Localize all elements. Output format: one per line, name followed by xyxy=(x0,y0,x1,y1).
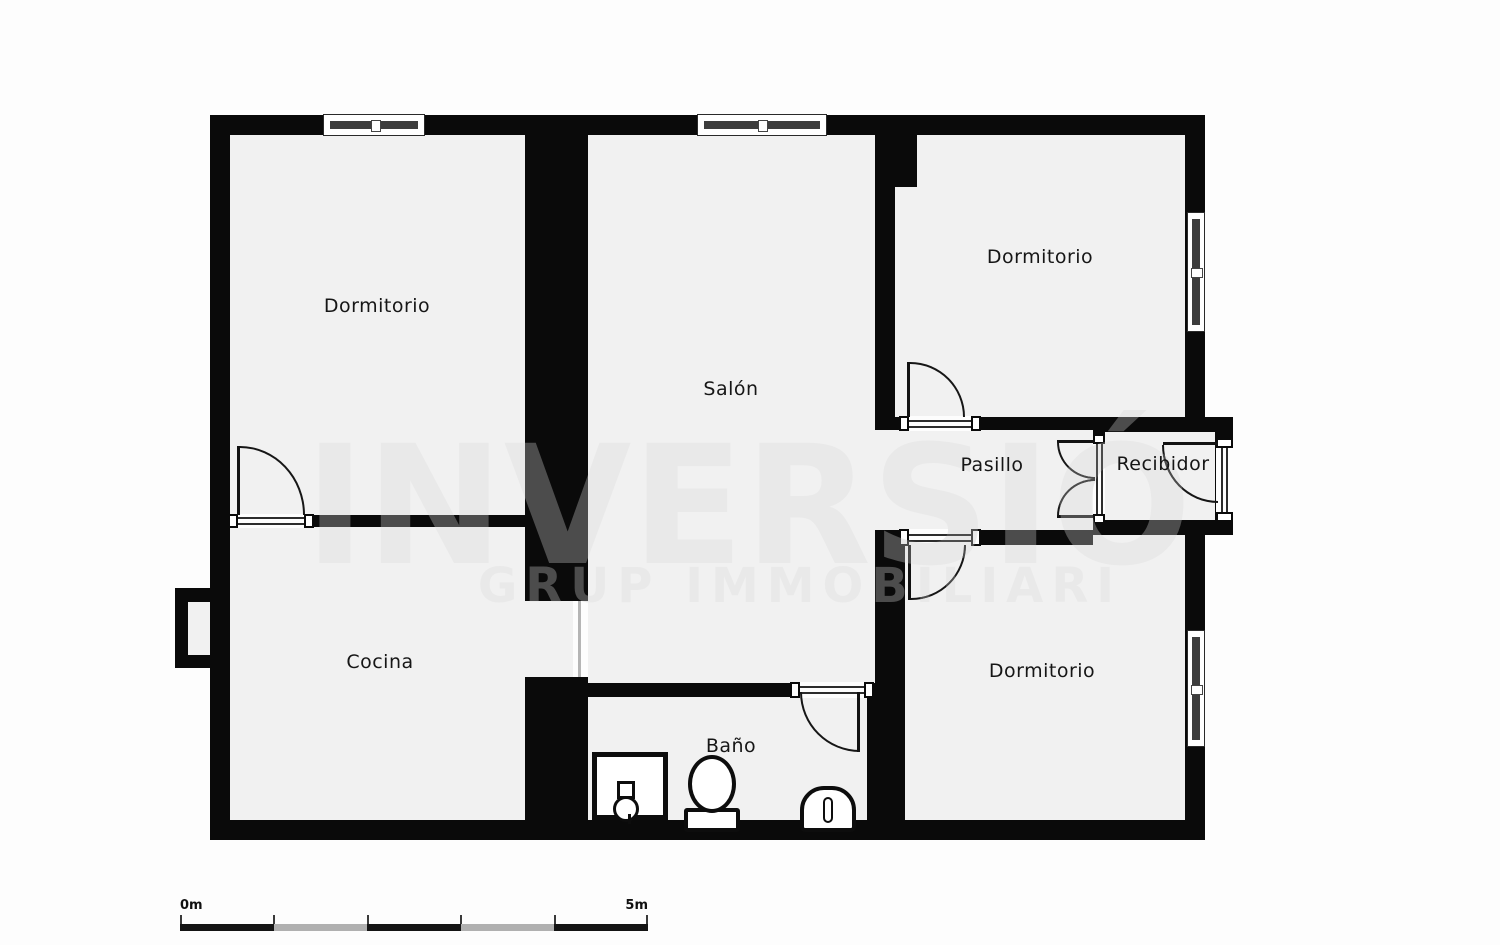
window xyxy=(697,114,827,136)
scale-segment xyxy=(367,924,461,931)
toilet-bowl-symbol xyxy=(688,755,736,813)
bidet-detail-pill xyxy=(823,797,833,823)
door-threshold-line xyxy=(238,517,304,519)
wall xyxy=(1093,417,1233,432)
window xyxy=(323,114,425,136)
door-jamb xyxy=(971,416,981,431)
door-jamb xyxy=(1216,512,1233,522)
room-label-bano: Baño xyxy=(706,735,756,757)
door-threshold-line xyxy=(909,540,971,542)
scale-end-label: 5m xyxy=(625,898,648,913)
door-threshold-line xyxy=(1226,448,1228,512)
floor-plan: INVERSIÓ GRUP IMMOBILIARI INVERSIÓ GRUP … xyxy=(0,0,1500,945)
room-label-dormitorio-br: Dormitorio xyxy=(989,660,1095,682)
window-mullion xyxy=(758,120,768,132)
wall xyxy=(210,115,230,840)
scale-segment xyxy=(554,924,648,931)
door-threshold-line xyxy=(1221,448,1223,512)
sliding-panel-line xyxy=(578,601,581,677)
door-jamb xyxy=(971,529,981,546)
wall xyxy=(525,135,588,601)
door-jamb xyxy=(899,416,909,431)
door-threshold-line xyxy=(1101,444,1103,514)
room-label-salon: Salón xyxy=(703,378,758,400)
scale-bar: 0m 5m xyxy=(180,898,648,940)
wall xyxy=(975,417,1093,430)
door-opening xyxy=(899,416,981,431)
wall xyxy=(977,530,1093,545)
room-label-dormitorio-tr: Dormitorio xyxy=(987,246,1093,268)
door-jamb xyxy=(864,682,874,698)
wall xyxy=(525,677,588,820)
apartment-floor xyxy=(230,135,1185,820)
door-threshold-line xyxy=(909,426,971,428)
door-threshold-line xyxy=(238,523,304,525)
door-threshold-line xyxy=(1096,444,1098,514)
scale-start-label: 0m xyxy=(180,898,203,913)
window xyxy=(1187,630,1205,747)
door-opening xyxy=(899,529,981,546)
entrance-door-opening xyxy=(1216,438,1233,522)
room-label-cocina: Cocina xyxy=(346,651,413,673)
sink-unit-detail-circle xyxy=(613,796,639,822)
scale-segment xyxy=(180,924,274,931)
room-label-pasillo: Pasillo xyxy=(960,454,1023,476)
door-threshold-line xyxy=(909,420,971,422)
wall xyxy=(875,545,905,820)
door-jamb xyxy=(304,514,314,528)
scale-segment xyxy=(461,924,554,931)
door-jamb xyxy=(1216,438,1233,448)
window xyxy=(1187,212,1205,332)
window-mullion xyxy=(1191,268,1203,278)
door-threshold-line xyxy=(909,534,971,536)
wall xyxy=(1093,520,1233,535)
wall xyxy=(588,683,797,697)
window-mullion xyxy=(1191,685,1203,695)
door-jamb xyxy=(228,514,238,528)
sink-unit-detail-stem xyxy=(628,814,631,824)
door-threshold-line xyxy=(800,686,864,688)
window-mullion xyxy=(371,120,381,132)
door-jamb xyxy=(790,682,800,698)
room-label-recibidor: Recibidor xyxy=(1116,453,1209,475)
door-jamb xyxy=(899,529,909,546)
wall xyxy=(875,135,917,187)
wall xyxy=(175,655,230,668)
scale-segment xyxy=(274,924,367,931)
room-label-dormitorio-tl: Dormitorio xyxy=(324,295,430,317)
